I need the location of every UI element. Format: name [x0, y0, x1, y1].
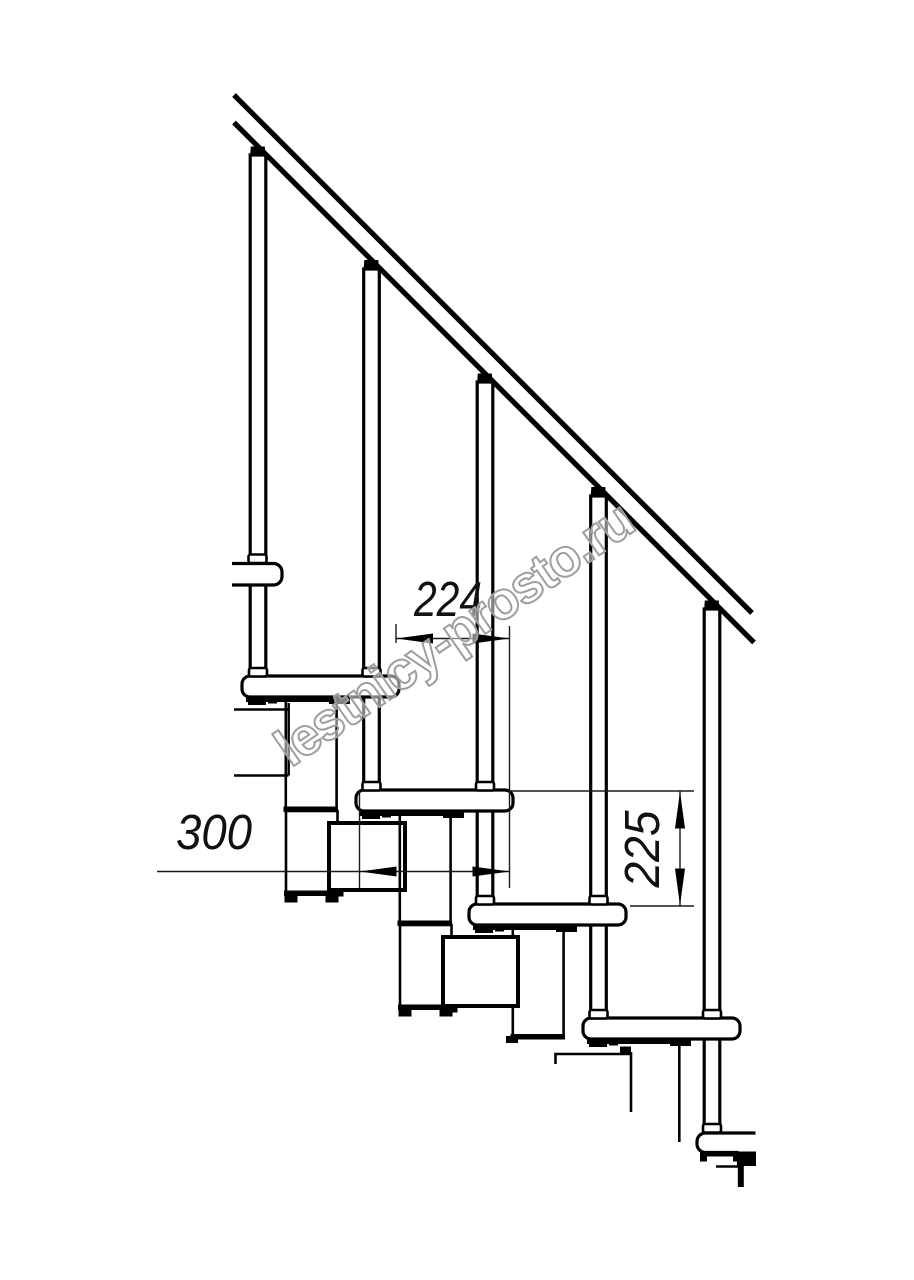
svg-text:300: 300	[176, 806, 252, 860]
svg-text:225: 225	[616, 810, 670, 889]
